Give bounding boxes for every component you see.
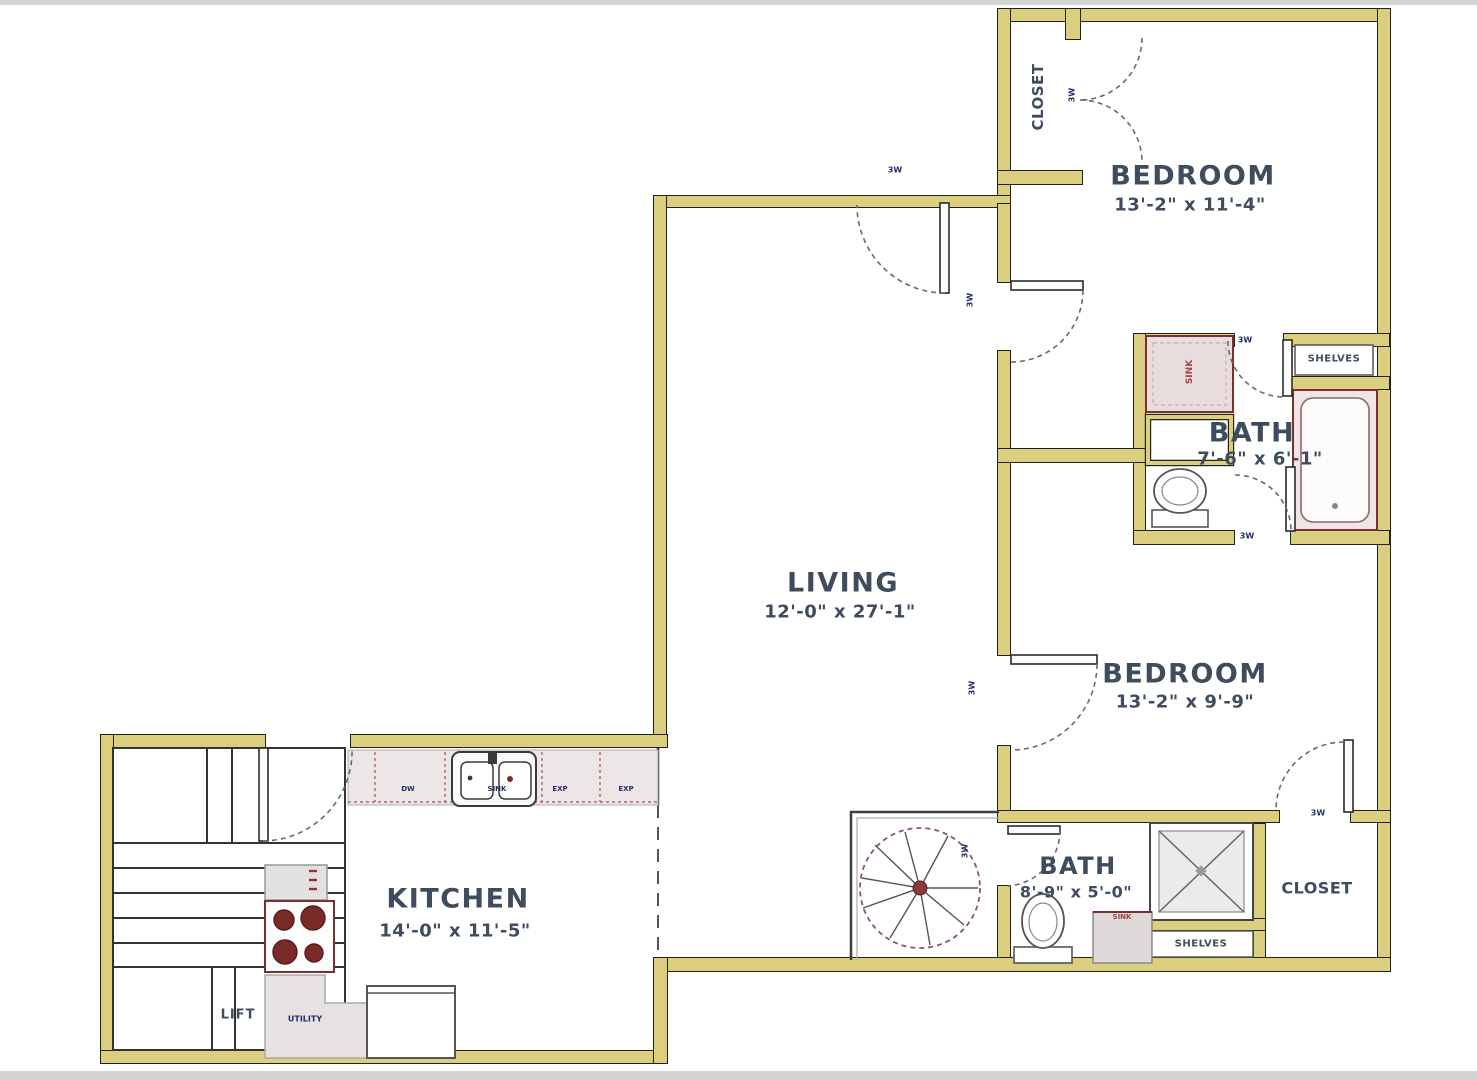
kitchen-sink-icon <box>452 752 536 806</box>
floor-plan-canvas: BEDROOM 13'-2" x 11'-4" LIVING 12'-0" x … <box>0 0 1477 1080</box>
door-size-marker: 3W <box>888 166 902 175</box>
room-label-bath-1: BATH <box>1209 418 1295 449</box>
room-dims-bath-2: 8'-9" x 5'-0" <box>1020 883 1132 902</box>
shower-icon <box>1150 823 1253 920</box>
room-label-kitchen: KITCHEN <box>386 884 529 915</box>
door-size-marker: 3W <box>1240 532 1254 541</box>
kitchen-counter <box>348 750 658 806</box>
counter-label-dw: DW <box>401 785 415 793</box>
door-size-marker: 3W <box>968 681 977 695</box>
room-dims-bath-1: 7'-6" x 6'-1" <box>1197 449 1322 470</box>
room-dims-living: 12'-0" x 27'-1" <box>764 602 916 623</box>
shelves-label-2: SHELVES <box>1175 939 1228 950</box>
bath2-sink-label: SINK <box>1113 913 1132 921</box>
room-label-closet-2: CLOSET <box>1281 879 1352 898</box>
room-label-bedroom-1: BEDROOM <box>1110 161 1276 192</box>
range-hood <box>265 865 327 900</box>
bath1-sink-label: SINK <box>1185 360 1195 384</box>
room-label-closet-1: CLOSET <box>1029 63 1047 130</box>
room-dims-bedroom-2: 13'-2" x 9'-9" <box>1116 692 1254 713</box>
range-stove-icon <box>265 901 334 972</box>
top-edge-border <box>0 0 1477 5</box>
counter-label-exp-1: EXP <box>552 785 567 793</box>
bath2-toilet-icon <box>1014 894 1072 963</box>
door-size-marker: 3W <box>961 844 970 858</box>
door-size-marker: 3W <box>1068 88 1077 102</box>
room-dims-bedroom-1: 13'-2" x 11'-4" <box>1114 195 1266 216</box>
bath1-toilet-icon <box>1152 469 1208 527</box>
refrigerator-icon <box>367 986 455 1058</box>
door-size-marker: 3W <box>1238 336 1252 345</box>
bottom-edge-border <box>0 1071 1477 1080</box>
utility-cabinet-label: UTILITY <box>288 1015 322 1024</box>
room-label-bedroom-2: BEDROOM <box>1102 659 1268 690</box>
door-size-marker: 3W <box>966 293 975 307</box>
lift-label: LIFT <box>221 1008 256 1023</box>
room-label-bath-2: BATH <box>1039 852 1116 880</box>
counter-label-sink: SINK <box>488 785 507 793</box>
room-label-living: LIVING <box>787 568 899 599</box>
room-dims-kitchen: 14'-0" x 11'-5" <box>379 921 531 942</box>
counter-label-exp-2: EXP <box>618 785 633 793</box>
door-size-marker: 3W <box>1311 809 1325 818</box>
shelves-label-1: SHELVES <box>1308 354 1361 365</box>
